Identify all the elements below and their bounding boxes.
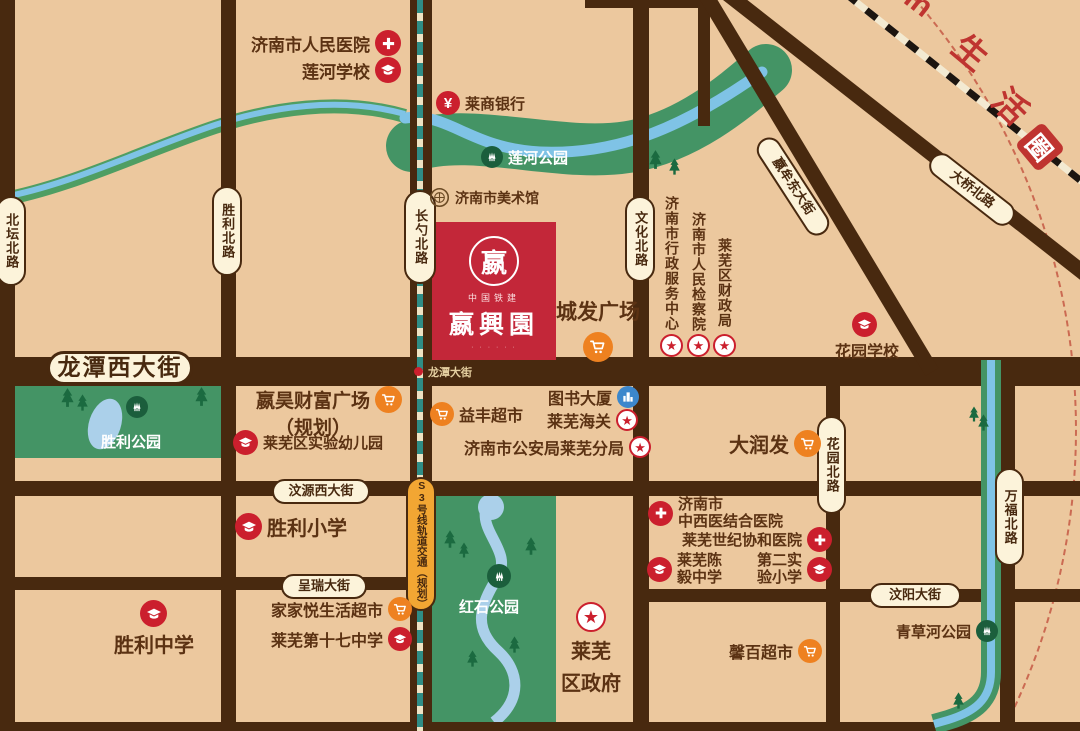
park-label: 红石公园 (459, 596, 519, 617)
landmark-admin-center: 济南市行政服务中心 (662, 196, 682, 331)
yen-bank-icon: ¥ (436, 91, 460, 115)
gov-star-icon: ★ (576, 602, 606, 632)
road-label-wanfu-north: 万福北路 (995, 468, 1024, 566)
landmark-label: 济南市公安局莱芜分局 (464, 435, 624, 459)
landmark-label: 济南市 (678, 496, 783, 513)
landmark-label: 大润发 (729, 429, 789, 458)
landmark-label: 莱芜世纪协和医院 (682, 529, 802, 550)
landmark-renmin-hospital: 济南市人民医院 (251, 30, 401, 56)
project-slogan: · · · · · · (471, 344, 517, 351)
landmark-second-experimental-primary: 第二实验小学 (757, 552, 832, 587)
road-label-wenyuan-west: 汶源西大街 (272, 479, 370, 504)
landmark-label: 莱芜第十七中学 (271, 627, 383, 651)
landmark-label: 莱芜区实验幼儿园 (263, 432, 383, 453)
road-label-chengrui: 呈瑞大街 (281, 574, 367, 599)
graduation-cap-icon (233, 430, 258, 455)
landmark-label: 花园学校 (835, 338, 899, 362)
shopping-cart-icon (430, 402, 454, 426)
landmark-label: 区政府 (561, 667, 621, 696)
landmark-district-government: ★ 莱芜 区政府 (545, 602, 637, 696)
tree-icon (524, 537, 538, 555)
road-north-stub (698, 0, 710, 126)
tree-icon (60, 388, 75, 407)
tree-icon (443, 530, 457, 548)
shengli-park-label: 胜利公园 (101, 431, 161, 452)
landmark-chengfa-plaza: 城发广场 (556, 296, 640, 362)
graduation-cap-icon (235, 513, 262, 540)
road-label-longtan-west: 龙潭西大街 (47, 351, 193, 385)
park-label: 胜利公园 (101, 431, 161, 452)
shopping-cart-icon (375, 386, 402, 413)
qingcao-park-label: 青草河公园 (896, 620, 998, 642)
library-building-icon (617, 386, 639, 408)
gov-star-icon: ★ (713, 334, 736, 357)
landmark-shengli-middle: 胜利中学 (114, 629, 194, 658)
landmark-customs: 莱芜海关 ★ (547, 408, 638, 432)
tree-icon (76, 394, 89, 411)
graduation-cap-icon (388, 627, 412, 651)
landmark-label: 莱商银行 (465, 93, 525, 114)
tree-icon (668, 158, 681, 175)
landmark-procuratorate: 济南市人民检察院 (689, 212, 709, 332)
graduation-cap-icon (807, 557, 832, 582)
road-label-huayuan-north: 花园北路 (817, 416, 846, 514)
tree-icon (508, 636, 521, 653)
graduation-cap-icon (140, 600, 167, 627)
museum-seal-icon (429, 187, 450, 208)
landmark-label: 馨百超市 (729, 639, 793, 663)
gov-star-icon: ★ (629, 436, 651, 458)
tree-icon (648, 150, 663, 169)
subway-station-dot (414, 367, 423, 376)
landmark-huayuan-school: 花园学校 (835, 338, 899, 362)
road-label-wenhua-north: 文化北路 (625, 196, 655, 282)
landmark-laishang-bank: ¥ 莱商银行 (436, 91, 525, 115)
graduation-cap-icon (647, 557, 672, 582)
landmark-label: 城发广场 (556, 296, 640, 326)
shopping-cart-icon (798, 639, 822, 663)
park-trees-icon (126, 396, 148, 418)
landmark-kindergarten: 莱芜区实验幼儿园 (233, 430, 383, 455)
landmark-jiajiayue-market: 家家悦生活超市 (271, 597, 412, 621)
landmark-zhongxiyi-hospital: 济南市中西医结合医院 (648, 496, 783, 531)
landmark-no17-middle-school: 莱芜第十七中学 (271, 627, 412, 651)
landmark-lianhe-school: 莲河学校 (302, 57, 401, 83)
tree-icon (458, 542, 470, 558)
landmark-police: 济南市公安局莱芜分局 ★ (464, 435, 651, 459)
landmark-art-museum: 济南市美术馆 (429, 187, 539, 208)
park-trees-icon (487, 564, 511, 588)
landmark-shengli-primary: 胜利小学 (235, 512, 347, 541)
landmark-label: 验小学 (757, 569, 802, 586)
landmark-label: 图书大厦 (548, 385, 612, 409)
landmark-label: 胜利小学 (267, 512, 347, 541)
park-label: 青草河公园 (896, 621, 971, 642)
landmark-yifeng-market: 益丰超市 (430, 402, 523, 426)
project-block: 嬴 中国铁建 嬴興園 · · · · · · (432, 222, 556, 360)
gov-star-icon: ★ (660, 334, 683, 357)
graduation-cap-icon (852, 312, 877, 337)
landmark-label: 莱芜 (571, 635, 611, 664)
hospital-cross-icon (807, 527, 832, 552)
park-label: 莲河公园 (508, 147, 568, 168)
landmark-label: 第二实 (757, 552, 802, 569)
gov-star-icon: ★ (687, 334, 710, 357)
landmark-shiji-hospital: 莱芜世纪协和医院 (682, 527, 832, 552)
project-brand: 中国铁建 (468, 291, 520, 304)
life-circle-stamp: 圈 (1015, 122, 1066, 173)
landmark-label: 济南市人民医院 (251, 31, 370, 56)
lianhe-park-label: 莲河公园 (481, 146, 568, 168)
tree-icon (194, 387, 209, 406)
road-label-shengli-north: 胜利北路 (212, 186, 242, 276)
location-map: in 生 活 圈 嬴 中国铁建 嬴興園 · · · · · · 北坛北路 胜利北… (0, 0, 1080, 731)
landmark-library: 图书大厦 (548, 385, 639, 409)
landmark-chenyi-middle-school: 莱芜陈毅中学 (647, 552, 722, 587)
landmark-finance-bureau: 莱芜区财政局 (715, 238, 735, 328)
tree-icon (977, 414, 990, 431)
subway-station-label: 龙潭大街 (428, 364, 472, 380)
shopping-cart-icon (794, 430, 821, 457)
park-trees-icon (481, 146, 503, 168)
park-trees-icon (976, 620, 998, 642)
tree-icon (466, 650, 479, 667)
graduation-cap-icon (375, 57, 401, 83)
shopping-cart-icon (583, 332, 613, 362)
landmark-label: 莱芜陈 (677, 552, 722, 569)
hospital-cross-icon (648, 501, 673, 526)
road-label-wenyang: 汶阳大街 (869, 583, 961, 608)
shopping-cart-icon (388, 597, 412, 621)
landmark-label: 胜利中学 (114, 629, 194, 658)
road-bottom (0, 722, 1080, 731)
project-name: 嬴興園 (449, 305, 539, 341)
subway-s3-label: S3号线轨道交通（规划） (406, 477, 436, 611)
landmark-label: 益丰超市 (459, 402, 523, 426)
gov-star-icon: ★ (616, 409, 638, 431)
landmark-label: 莲河学校 (302, 58, 370, 83)
project-logo-icon: 嬴 (469, 236, 519, 286)
landmark-darunfa: 大润发 (729, 429, 821, 458)
hospital-cross-icon (375, 30, 401, 56)
road-shengli-north (221, 0, 236, 731)
landmark-label: 莱芜海关 (547, 408, 611, 432)
landmark-label: 家家悦生活超市 (271, 597, 383, 621)
landmark-label: 嬴昊财富广场 (256, 386, 370, 413)
landmark-xinbai-market: 馨百超市 (729, 639, 822, 663)
subway-s3-line (417, 0, 423, 731)
landmark-label: 毅中学 (677, 569, 722, 586)
road-wenyuan-west (0, 481, 1080, 496)
hongshi-park-label: 红石公园 (459, 596, 519, 617)
road-label-beitan-north: 北坛北路 (0, 196, 26, 286)
road-beitan-north (0, 0, 15, 731)
landmark-label: 济南市美术馆 (455, 188, 539, 208)
tree-icon (952, 692, 965, 709)
